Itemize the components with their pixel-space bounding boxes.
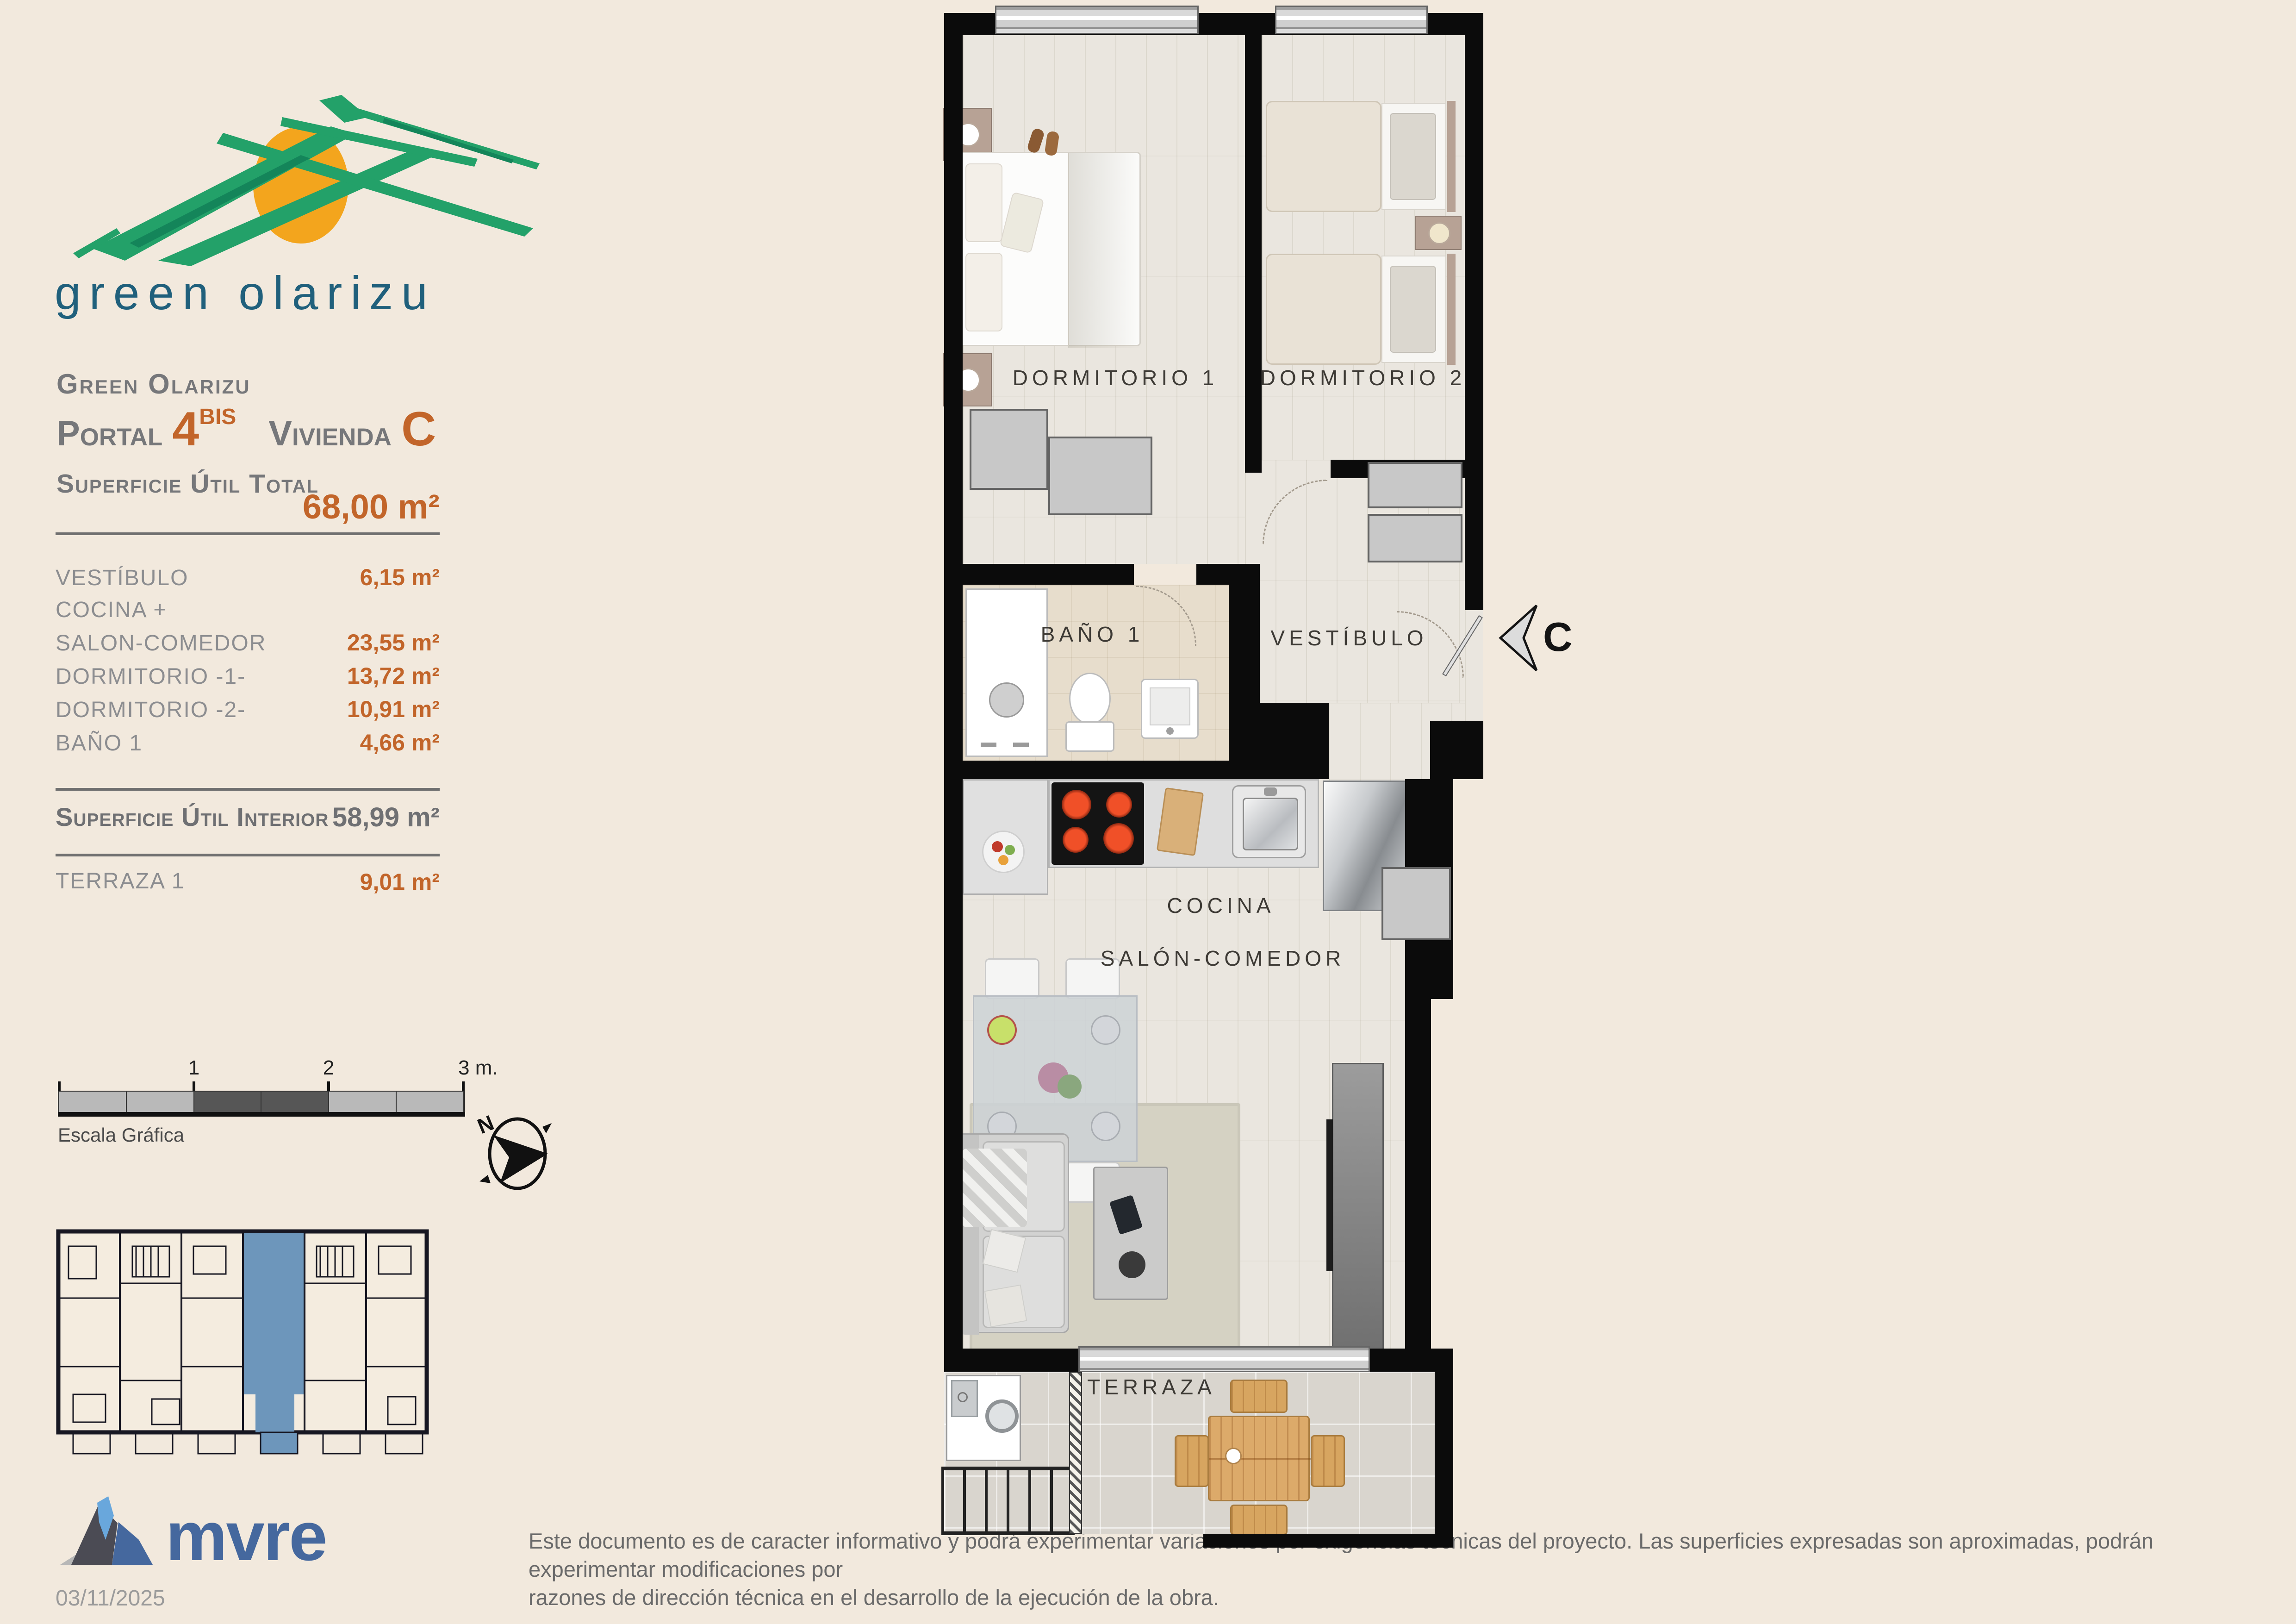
plan-date: 03/11/2025 xyxy=(56,1586,165,1611)
green-olarizu-logo xyxy=(60,90,551,269)
wall xyxy=(944,761,1260,779)
row-value: 6,15 m² xyxy=(360,564,440,591)
terrace-chair xyxy=(1230,1505,1288,1535)
table-row: DORMITORIO -1-13,72 m² xyxy=(56,662,440,689)
single-bed xyxy=(1266,254,1456,365)
scale-tick-2: 2 xyxy=(318,1056,339,1080)
area-table: VESTÍBULO6,15 m² COCINA + SALON-COMEDOR2… xyxy=(56,564,440,762)
interior-area-row: Superficie Útil Interior 58,99 m² xyxy=(56,802,440,833)
row-label: BAÑO 1 xyxy=(56,731,143,756)
fruit-bowl xyxy=(982,831,1025,873)
closet xyxy=(1368,462,1462,508)
portal-label: Portal xyxy=(56,414,162,453)
mvre-logo: mvre xyxy=(52,1495,408,1576)
divider xyxy=(56,788,440,791)
interior-area-value: 58,99 m² xyxy=(332,802,440,833)
scale-caption: Escala Gráfica xyxy=(58,1124,184,1146)
closet xyxy=(1368,514,1462,562)
plan-label-salon-comedor: SALÓN-COMEDOR xyxy=(1101,946,1345,971)
divider xyxy=(56,854,440,856)
site-plan xyxy=(55,1228,430,1459)
wardrobe xyxy=(1048,437,1152,515)
plan-label-cocina: COCINA xyxy=(1167,893,1275,918)
table-row: BAÑO 14,66 m² xyxy=(56,729,440,756)
wall xyxy=(1203,1534,1453,1548)
kitchen-sink xyxy=(1232,785,1306,858)
dining-chair xyxy=(985,958,1039,999)
row-label: COCINA + xyxy=(56,597,167,623)
divider xyxy=(56,532,440,535)
project-title: Green Olarizu xyxy=(56,368,251,400)
wall xyxy=(1435,1372,1453,1538)
sofa xyxy=(957,1133,1069,1333)
table-row: VESTÍBULO6,15 m² xyxy=(56,564,440,591)
window xyxy=(1275,6,1428,34)
shower xyxy=(965,588,1048,757)
wardrobe xyxy=(970,409,1048,490)
wall xyxy=(1430,721,1483,779)
window xyxy=(995,6,1199,34)
railing-hatch xyxy=(1069,1372,1082,1534)
logo-wordmark: green olarizu xyxy=(55,266,436,320)
terrace-chair xyxy=(1230,1380,1288,1413)
entrance-letter: C xyxy=(1543,614,1573,660)
coffee-table xyxy=(1093,1167,1168,1300)
plan-label-bano-1: BAÑO 1 xyxy=(1041,622,1144,647)
brochure-page: green olarizu Green Olarizu Portal 4BISV… xyxy=(0,0,2296,1624)
row-label: DORMITORIO -2- xyxy=(56,697,246,723)
wall xyxy=(944,13,963,1355)
interior-area-label: Superficie Útil Interior xyxy=(56,802,329,833)
terrace-slider-window xyxy=(1078,1346,1370,1372)
wall xyxy=(1465,13,1483,610)
plan-label-terraza: TERRAZA xyxy=(1087,1374,1216,1399)
portal-suffix: BIS xyxy=(199,405,236,429)
terrace-chair xyxy=(1311,1435,1345,1487)
nightstand xyxy=(1415,216,1462,250)
portal-vivienda-title: Portal 4BISVivienda C xyxy=(56,402,436,457)
plan-label-dormitorio-2: DORMITORIO 2 xyxy=(1260,365,1466,390)
compass-icon: N xyxy=(473,1106,556,1193)
toilet-tank xyxy=(1065,721,1114,752)
washing-machine xyxy=(946,1375,1021,1461)
toilet xyxy=(1069,673,1111,725)
wall xyxy=(1260,703,1329,779)
brand-wordmark: mvre xyxy=(166,1497,326,1575)
wall xyxy=(1229,564,1260,779)
total-area-value: 68,00 m² xyxy=(56,487,440,526)
row-label: DORMITORIO -1- xyxy=(56,664,246,689)
wall xyxy=(1405,999,1431,1351)
bathroom-sink xyxy=(1141,679,1199,739)
entrance-marker: C xyxy=(1494,602,1582,676)
wall xyxy=(944,1349,1078,1372)
closet xyxy=(1381,867,1451,940)
terrace-area-label: TERRAZA 1 xyxy=(56,868,185,895)
highlighted-unit xyxy=(244,1233,304,1394)
plan-label-vestibulo: VESTÍBULO xyxy=(1270,625,1427,650)
entrance-arrow-icon xyxy=(1500,606,1537,670)
floor-plan: DORMITORIO 1 DORMITORIO 2 BAÑO 1 VESTÍBU… xyxy=(930,13,1493,1550)
row-value: 23,55 m² xyxy=(347,629,440,656)
tv-unit xyxy=(1332,1063,1384,1365)
terrace-area-value: 9,01 m² xyxy=(360,868,440,895)
wall xyxy=(1370,1349,1453,1372)
disclaimer-line-2: razones de dirección técnica en el desar… xyxy=(529,1583,2269,1612)
cooktop xyxy=(1052,782,1144,865)
scale-tick-3: 3 m. xyxy=(458,1056,498,1080)
wall xyxy=(944,564,1134,585)
terrace-table xyxy=(1208,1416,1310,1501)
vivienda-letter: C xyxy=(401,402,436,456)
wall xyxy=(1245,35,1262,473)
single-bed xyxy=(1266,101,1456,212)
vivienda-label: Vivienda xyxy=(268,414,392,453)
double-bed xyxy=(951,152,1141,346)
terrace-chair xyxy=(1175,1435,1209,1487)
plan-label-dormitorio-1: DORMITORIO 1 xyxy=(1013,365,1219,390)
row-label: VESTÍBULO xyxy=(56,565,188,591)
table-row: DORMITORIO -2-10,91 m² xyxy=(56,696,440,723)
railing xyxy=(941,1467,1075,1535)
table-row: COCINA + xyxy=(56,597,440,623)
table-row: SALON-COMEDOR23,55 m² xyxy=(56,629,440,656)
scale-segments xyxy=(59,1092,463,1112)
terrace-area-row: TERRAZA 1 9,01 m² xyxy=(56,868,440,895)
row-value: 4,66 m² xyxy=(360,729,440,756)
portal-number: 4 xyxy=(172,402,199,456)
scale-tick-1: 1 xyxy=(183,1056,205,1080)
tv-screen xyxy=(1326,1119,1333,1271)
row-label: SALON-COMEDOR xyxy=(56,631,266,656)
row-value: 13,72 m² xyxy=(347,662,440,689)
row-value: 10,91 m² xyxy=(347,696,440,723)
